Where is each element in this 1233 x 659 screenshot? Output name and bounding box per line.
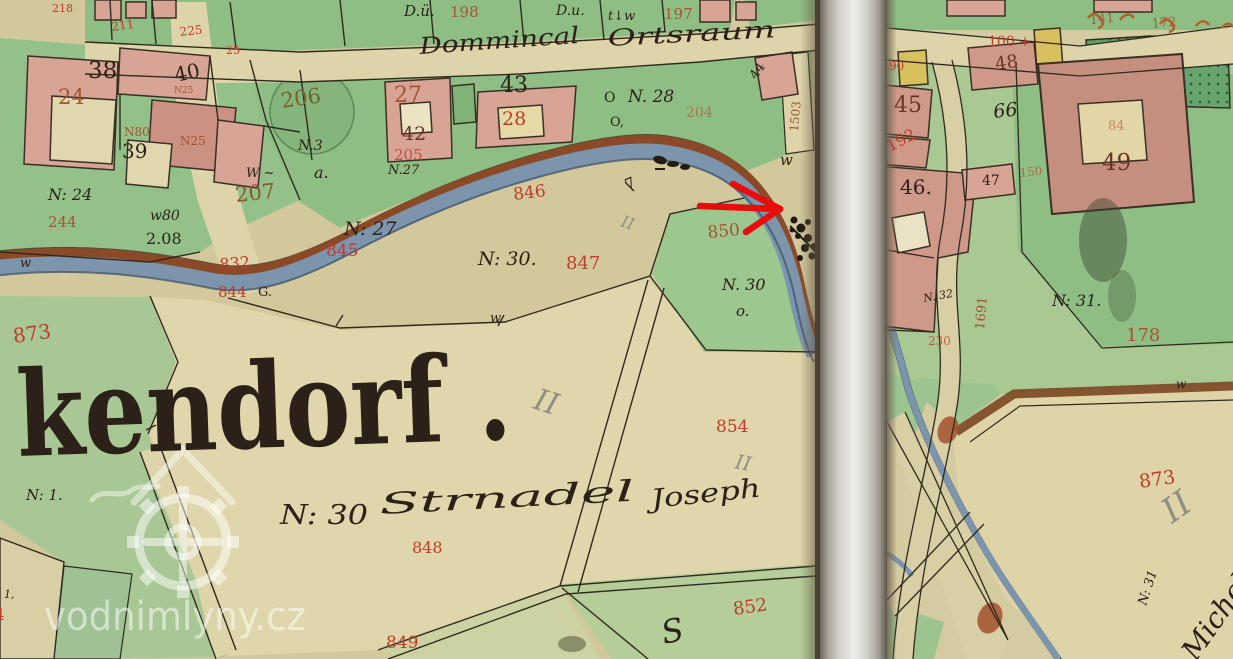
lbl-24: 24 [58,85,85,109]
ink-blot-b [1108,270,1136,322]
lbl-n31: N: 31. [1051,291,1101,310]
lbl-n25b: N25 [180,134,206,148]
lbl-172: 172 [1151,15,1177,32]
left-sheet-edge [815,0,820,659]
lbl-49: 49 [1102,150,1131,176]
right-map-sheet [876,0,1233,659]
lbl-45: 45 [894,93,922,118]
lbl-1691: 1691 [973,296,991,330]
lbl-n30-big: N: 30 [279,500,368,531]
screenshot-root: 21821122525D.ü.198D.u.t↓w197DommincalOrt… [0,0,1233,659]
lbl-du1: D.ü. [403,2,435,20]
lbl-o3: o. [736,302,750,320]
lbl-48: 48 [994,51,1020,75]
lbl-n3: N.3 [297,138,323,154]
lbl-100: 100 + [988,34,1031,50]
lbl-205: 205 [394,146,423,164]
lbl-832: 832 [219,252,251,274]
lbl-46: 46. [900,175,932,199]
lbl-w-right: w [1176,377,1187,391]
lbl-854: 854 [716,417,748,437]
lbl-844g: G. [258,285,272,300]
lbl-218: 218 [52,2,73,15]
lbl-kendorf: kendorf . [14,328,514,484]
lbl-w80: w80 [150,208,180,224]
lbl-n30b: N. 30 [721,275,766,294]
lbl-n27a: N.27 [387,163,420,178]
lbl-846: 846 [512,181,547,205]
lbl-844: 844 [218,283,247,301]
watermark-text: vodnimlyny.cz [44,594,306,640]
lbl-207: 207 [234,179,276,207]
historical-map: 21821122525D.ü.198D.u.t↓w197DommincalOrt… [0,0,1233,659]
lbl-o2: O, [610,115,624,130]
lbl-178: 178 [1126,325,1160,346]
lbl-a: a. [314,163,329,182]
lbl-847: 847 [566,253,600,274]
lbl-w-left: w [20,256,31,271]
lbl-198: 198 [450,3,479,21]
lbl-43: 43 [500,73,528,98]
lbl-28: 28 [502,108,526,130]
lbl-n25a: N25 [174,86,194,96]
right-top-green [887,0,1233,30]
lbl-27: 27 [394,83,422,108]
lbl-849: 849 [386,633,418,653]
sheet-gap [820,0,887,659]
lbl-845: 845 [326,241,358,261]
lbl-850: 850 [707,220,741,243]
watermark-wheel-icon [127,486,239,598]
lbl-1503: 1503 [787,101,804,133]
lbl-w-field: w [490,311,501,326]
lbl-du2: D.u. [555,3,585,19]
lbl-66: 66 [992,99,1018,123]
ink-blot-a [1079,198,1127,282]
lbl-n24: N: 24 [47,185,92,204]
lbl-150: 150 [1019,164,1043,180]
lbl-1comma: 1, [4,588,15,601]
lbl-244: 244 [48,213,77,231]
lbl-42: 42 [402,123,426,145]
lbl-230: 230 [928,334,951,348]
lbl-39: 39 [122,139,147,163]
lbl-w-mill: w [780,151,793,169]
lbl-n28: N. 28 [627,87,674,107]
lbl-o1: O [604,90,615,106]
lbl-n30a: N: 30. [477,248,537,270]
lbl-141: 141 [1089,11,1115,28]
lbl-225: 225 [179,23,203,39]
lbl-n80: N80 [124,125,150,139]
lbl-208: 2.08 [146,229,182,248]
lbl-47: 47 [982,173,1000,189]
lbl-n27b: N: 27 [343,218,397,240]
ink-smudge [558,636,586,652]
lbl-84: 84 [1108,119,1125,134]
lbl-38: 38 [88,58,117,84]
lbl-848: 848 [412,538,443,557]
lbl-844-frag: 844 [0,605,5,624]
lbl-tw: t↓w [608,9,635,24]
lbl-n1: N: 1. [25,486,63,504]
lbl-90: 90 [889,59,904,73]
lbl-25: 25 [226,44,240,57]
lbl-197: 197 [664,5,693,23]
lbl-204: 204 [686,105,713,121]
